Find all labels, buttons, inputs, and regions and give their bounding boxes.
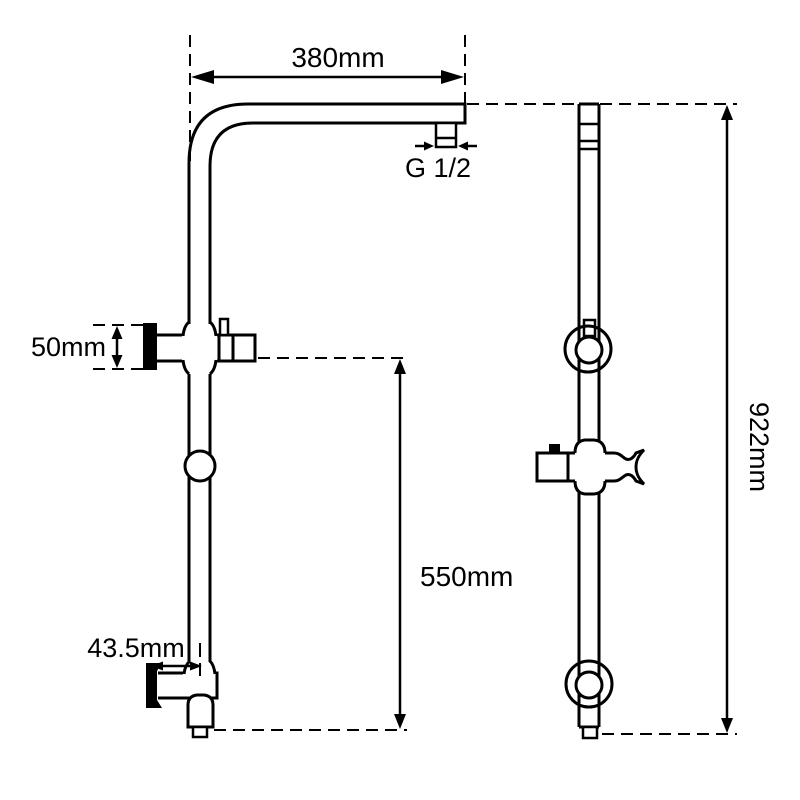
diverter-knob	[220, 319, 228, 335]
shower-arm-outline	[189, 104, 465, 324]
top-wall-bracket	[143, 319, 255, 374]
lock-button	[549, 444, 560, 453]
side-view	[537, 104, 644, 738]
hose-outlet	[188, 695, 213, 727]
shower-rail-dimension-diagram: 380mm G 1/2 50mm 43.5mm	[0, 0, 800, 800]
ring-inner	[576, 672, 602, 698]
overall-height-label: 922mm	[744, 402, 774, 492]
diagram-canvas: 380mm G 1/2 50mm 43.5mm	[0, 0, 800, 800]
top-mount-ring	[565, 320, 611, 372]
side-rail	[579, 104, 599, 727]
collar-top	[575, 440, 605, 453]
holder-fill	[568, 450, 644, 484]
slider-holder	[537, 440, 644, 494]
arm-length-label: 380mm	[291, 42, 384, 73]
bottom-wall-bracket	[146, 661, 217, 737]
outlet-nub	[193, 727, 207, 737]
rail-length-label: 550mm	[420, 561, 513, 592]
fitting-body	[436, 123, 456, 147]
dim-arm-length: 380mm	[190, 35, 465, 162]
dim-bracket-height: 50mm	[31, 325, 152, 369]
rail-ring	[185, 451, 215, 481]
wall-flange	[143, 323, 157, 370]
slider-block	[537, 453, 568, 481]
dim-overall-height: 922mm	[467, 104, 774, 734]
thread-label: G 1/2	[405, 153, 471, 183]
rail-fillet-top	[183, 322, 216, 336]
bracket-height-label: 50mm	[31, 332, 106, 362]
riser-rail	[189, 374, 210, 662]
outlet-nub	[583, 727, 597, 738]
wall-offset-label: 43.5mm	[87, 633, 185, 663]
dim-rail-length: 550mm	[214, 358, 513, 730]
ring-inner	[576, 337, 602, 363]
front-view	[143, 104, 465, 737]
g-half-fitting	[436, 123, 456, 147]
bottom-mount-ring	[566, 661, 612, 707]
rail-fillet-bottom	[183, 360, 216, 374]
collar-bottom	[575, 481, 605, 494]
dimensions: 380mm G 1/2 50mm 43.5mm	[31, 35, 774, 734]
